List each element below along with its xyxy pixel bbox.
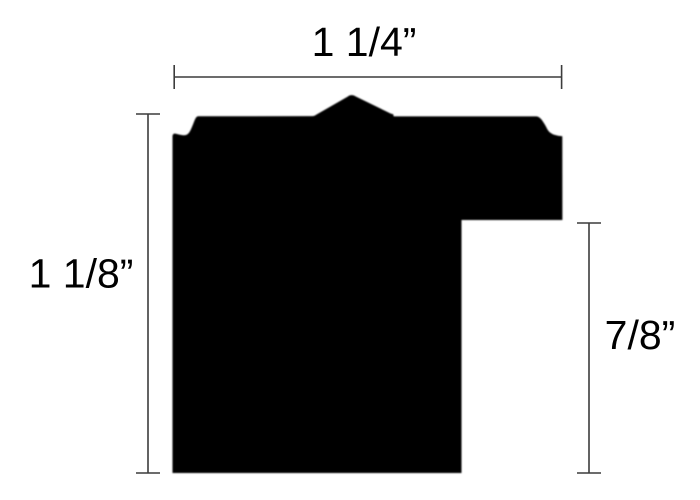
svg-text:1 1/8”: 1 1/8” xyxy=(29,251,134,297)
svg-text:7/8”: 7/8” xyxy=(605,312,676,358)
svg-text:1 1/4”: 1 1/4” xyxy=(312,19,417,65)
